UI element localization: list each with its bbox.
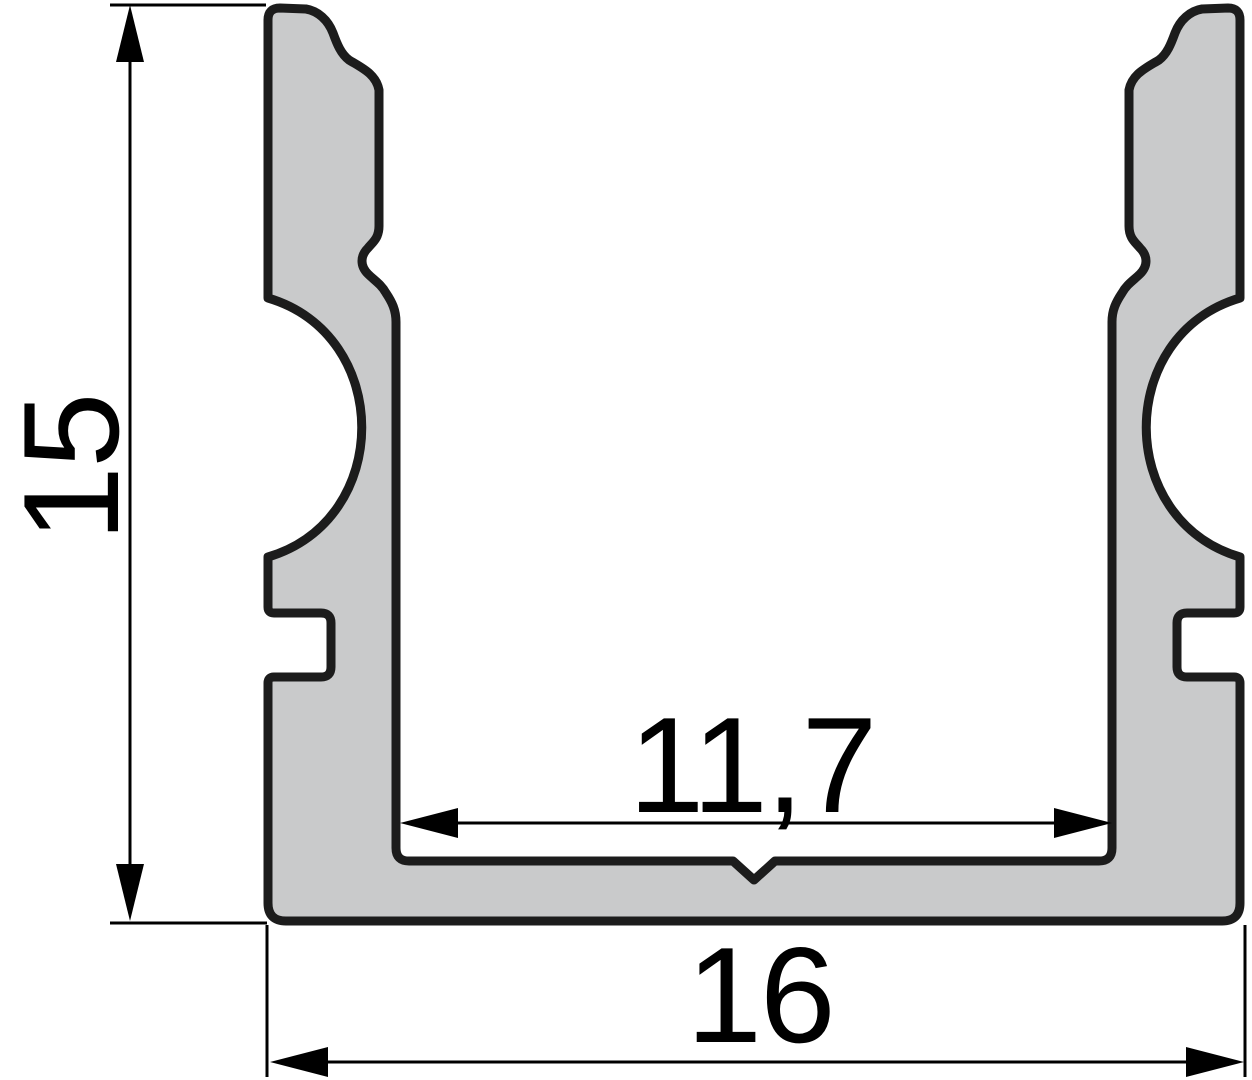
arrow-up-icon — [116, 5, 144, 62]
arrow-down-icon — [116, 864, 144, 921]
outer-width-dimension: 16 — [270, 919, 1244, 1077]
arrow-left-icon — [400, 808, 458, 838]
arrow-right-icon — [1054, 808, 1112, 838]
arrow-right-icon — [1186, 1047, 1244, 1077]
inner-width-dimension: 11,7 — [400, 689, 1112, 841]
outer-width-dimension-label: 16 — [686, 919, 833, 1071]
height-dimension-label: 15 — [0, 394, 147, 541]
height-dimension: 15 — [0, 5, 147, 921]
profile-technical-drawing: 15 11,7 16 — [0, 0, 1252, 1080]
inner-width-dimension-label: 11,7 — [629, 689, 876, 841]
arrow-left-icon — [270, 1047, 328, 1077]
drawing-canvas: 15 11,7 16 — [0, 0, 1252, 1080]
